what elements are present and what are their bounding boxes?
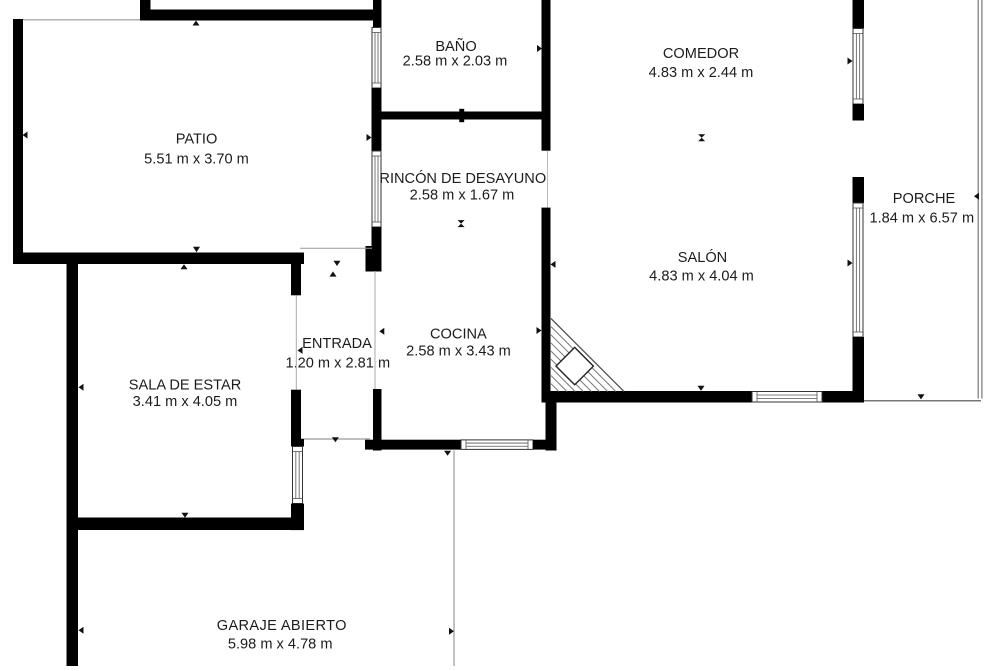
svg-text:SALÓN: SALÓN	[678, 249, 727, 266]
svg-text:SALA DE ESTAR: SALA DE ESTAR	[129, 378, 241, 394]
svg-text:3.41 m x 4.05 m: 3.41 m x 4.05 m	[133, 394, 238, 410]
svg-text:5.98 m x 4.78 m: 5.98 m x 4.78 m	[228, 637, 333, 653]
svg-text:GARAJE ABIERTO: GARAJE ABIERTO	[217, 618, 347, 634]
svg-text:BAÑO: BAÑO	[435, 38, 476, 55]
svg-text:RINCÓN DE DESAYUNO: RINCÓN DE DESAYUNO	[379, 170, 546, 187]
svg-text:2.58 m x 1.67 m: 2.58 m x 1.67 m	[410, 188, 515, 204]
svg-text:ENTRADA: ENTRADA	[302, 336, 372, 352]
svg-text:COMEDOR: COMEDOR	[663, 46, 739, 62]
svg-text:1.20 m x 2.81 m: 1.20 m x 2.81 m	[285, 356, 390, 372]
svg-text:4.83 m x 4.04 m: 4.83 m x 4.04 m	[649, 269, 754, 285]
svg-text:2.58 m x 2.03 m: 2.58 m x 2.03 m	[403, 54, 508, 70]
svg-text:PORCHE: PORCHE	[893, 191, 956, 207]
svg-text:2.58 m x 3.43 m: 2.58 m x 3.43 m	[406, 344, 511, 360]
svg-text:1.84 m x 6.57 m: 1.84 m x 6.57 m	[869, 211, 974, 227]
svg-text:COCINA: COCINA	[430, 327, 487, 343]
svg-text:5.51 m x 3.70 m: 5.51 m x 3.70 m	[144, 152, 249, 168]
svg-text:PATIO: PATIO	[176, 132, 218, 148]
svg-text:4.83 m x 2.44 m: 4.83 m x 2.44 m	[649, 65, 754, 81]
